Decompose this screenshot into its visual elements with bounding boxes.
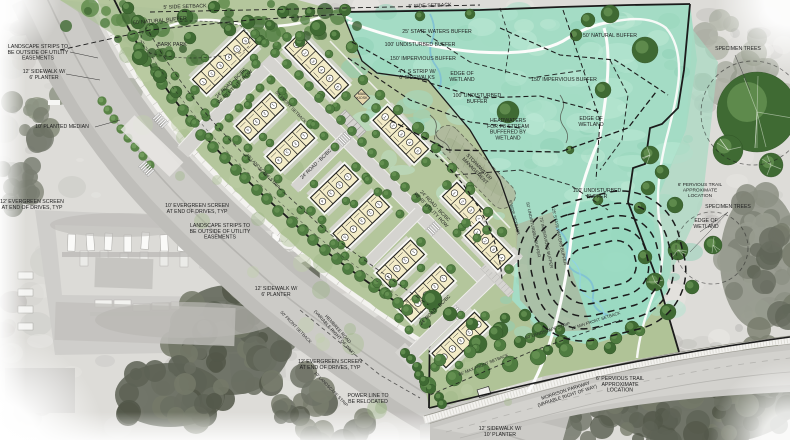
svg-text:SPECIMEN TREES: SPECIMEN TREES bbox=[705, 204, 751, 210]
svg-text:POWER LINE TOBE RELOCATED: POWER LINE TOBE RELOCATED bbox=[347, 393, 388, 405]
svg-text:12' EVERGREEN SCREENAT END OF: 12' EVERGREEN SCREENAT END OF DRIVES, TY… bbox=[298, 359, 362, 371]
svg-text:EDGE OFWETLAND: EDGE OFWETLAND bbox=[449, 71, 475, 83]
svg-text:EDGE OFWETLAND: EDGE OFWETLAND bbox=[693, 218, 719, 230]
svg-text:150' IMPERVIOUS BUFFER: 150' IMPERVIOUS BUFFER bbox=[531, 77, 597, 83]
svg-text:4' L.S STRIP W/6' SIDEWALKS: 4' L.S STRIP W/6' SIDEWALKS bbox=[398, 69, 436, 81]
svg-text:10' PLANTED MEDIAN: 10' PLANTED MEDIAN bbox=[35, 124, 89, 130]
svg-text:12' EVERGREEN SCREENAT END OF: 12' EVERGREEN SCREENAT END OF DRIVES, TY… bbox=[0, 199, 64, 211]
svg-text:EDGE OFWETLAND: EDGE OFWETLAND bbox=[578, 116, 604, 128]
svg-text:10' EVERGREEN SCREENAT END OF: 10' EVERGREEN SCREENAT END OF DRIVES, TY… bbox=[165, 203, 229, 215]
svg-text:BARK PARK: BARK PARK bbox=[157, 42, 187, 48]
svg-text:100' UNDISTURBED BUFFER: 100' UNDISTURBED BUFFER bbox=[385, 42, 456, 48]
svg-text:SPECIMEN TREES: SPECIMEN TREES bbox=[715, 46, 761, 52]
svg-text:50' NATURAL BUFFER: 50' NATURAL BUFFER bbox=[583, 33, 637, 39]
svg-text:150' IMPERVIOUS BUFFER: 150' IMPERVIOUS BUFFER bbox=[390, 56, 456, 62]
svg-text:25' STATE WATERS BUFFER: 25' STATE WATERS BUFFER bbox=[402, 29, 472, 35]
svg-text:12' SIDEWALK W/10' PLANTER: 12' SIDEWALK W/10' PLANTER bbox=[479, 426, 522, 438]
